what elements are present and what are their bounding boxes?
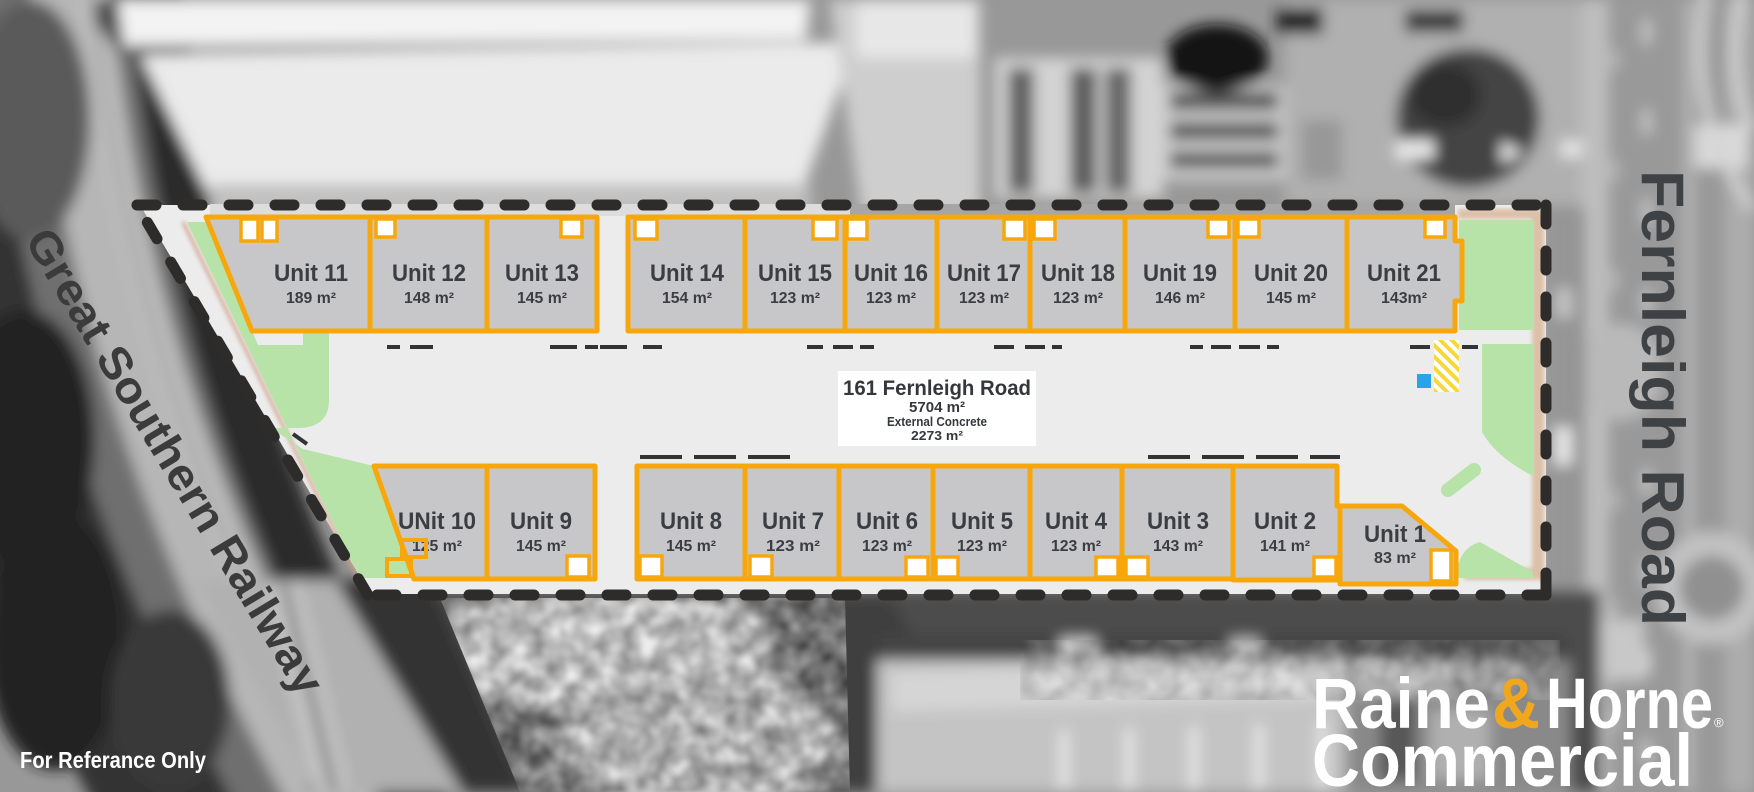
svg-text:83 m²: 83 m² [1374, 550, 1416, 567]
svg-text:146 m²: 146 m² [1155, 290, 1205, 307]
svg-text:161 Fernleigh Road: 161 Fernleigh Road [843, 377, 1031, 400]
svg-text:2273 m²: 2273 m² [911, 429, 963, 443]
svg-text:Unit 5: Unit 5 [951, 508, 1013, 535]
svg-text:Commercial: Commercial [1312, 719, 1693, 792]
svg-text:®: ® [1714, 715, 1724, 730]
svg-text:Unit 6: Unit 6 [856, 508, 918, 535]
svg-text:Unit 12: Unit 12 [392, 260, 466, 287]
svg-text:For Referance Only: For Referance Only [20, 747, 206, 773]
svg-text:148 m²: 148 m² [404, 290, 454, 307]
svg-text:Unit 7: Unit 7 [762, 508, 824, 535]
svg-text:Fernleigh Road: Fernleigh Road [1629, 170, 1696, 626]
svg-text:Unit 11: Unit 11 [274, 260, 348, 287]
svg-text:145 m²: 145 m² [1266, 290, 1316, 307]
svg-text:189 m²: 189 m² [286, 290, 336, 307]
svg-text:Unit 9: Unit 9 [510, 508, 572, 535]
svg-text:Unit 13: Unit 13 [505, 260, 579, 287]
svg-text:Unit 21: Unit 21 [1367, 260, 1441, 287]
svg-text:Unit 17: Unit 17 [947, 260, 1021, 287]
svg-text:Unit 20: Unit 20 [1254, 260, 1328, 287]
svg-text:Unit 4: Unit 4 [1045, 508, 1108, 535]
svg-text:123 m²: 123 m² [770, 290, 820, 307]
svg-text:Unit 3: Unit 3 [1147, 508, 1209, 535]
svg-text:UNit 10: UNit 10 [398, 508, 476, 535]
svg-text:External Concrete: External Concrete [887, 415, 987, 429]
svg-text:123 m²: 123 m² [862, 538, 912, 555]
svg-text:123 m²: 123 m² [959, 290, 1009, 307]
svg-text:145 m²: 145 m² [516, 538, 566, 555]
svg-text:5704 m²: 5704 m² [909, 399, 965, 416]
svg-text:145 m²: 145 m² [666, 538, 716, 555]
svg-text:Unit 19: Unit 19 [1143, 260, 1217, 287]
svg-text:123 m²: 123 m² [866, 290, 916, 307]
svg-text:Unit 8: Unit 8 [660, 508, 722, 535]
svg-text:Unit 2: Unit 2 [1254, 508, 1316, 535]
svg-text:Unit 1: Unit 1 [1364, 521, 1426, 548]
svg-text:Unit 15: Unit 15 [758, 260, 832, 287]
svg-text:145 m²: 145 m² [517, 290, 567, 307]
svg-text:154 m²: 154 m² [662, 290, 712, 307]
svg-text:143 m²: 143 m² [1153, 538, 1203, 555]
svg-text:Unit 14: Unit 14 [650, 260, 725, 287]
svg-text:123 m²: 123 m² [1053, 290, 1103, 307]
svg-text:123 m²: 123 m² [766, 538, 820, 555]
svg-text:123 m²: 123 m² [957, 538, 1007, 555]
svg-text:Unit 18: Unit 18 [1041, 260, 1115, 287]
svg-text:141 m²: 141 m² [1260, 538, 1310, 555]
svg-text:Unit 16: Unit 16 [854, 260, 928, 287]
svg-text:123 m²: 123 m² [1051, 538, 1101, 555]
svg-text:143m²: 143m² [1381, 290, 1427, 307]
